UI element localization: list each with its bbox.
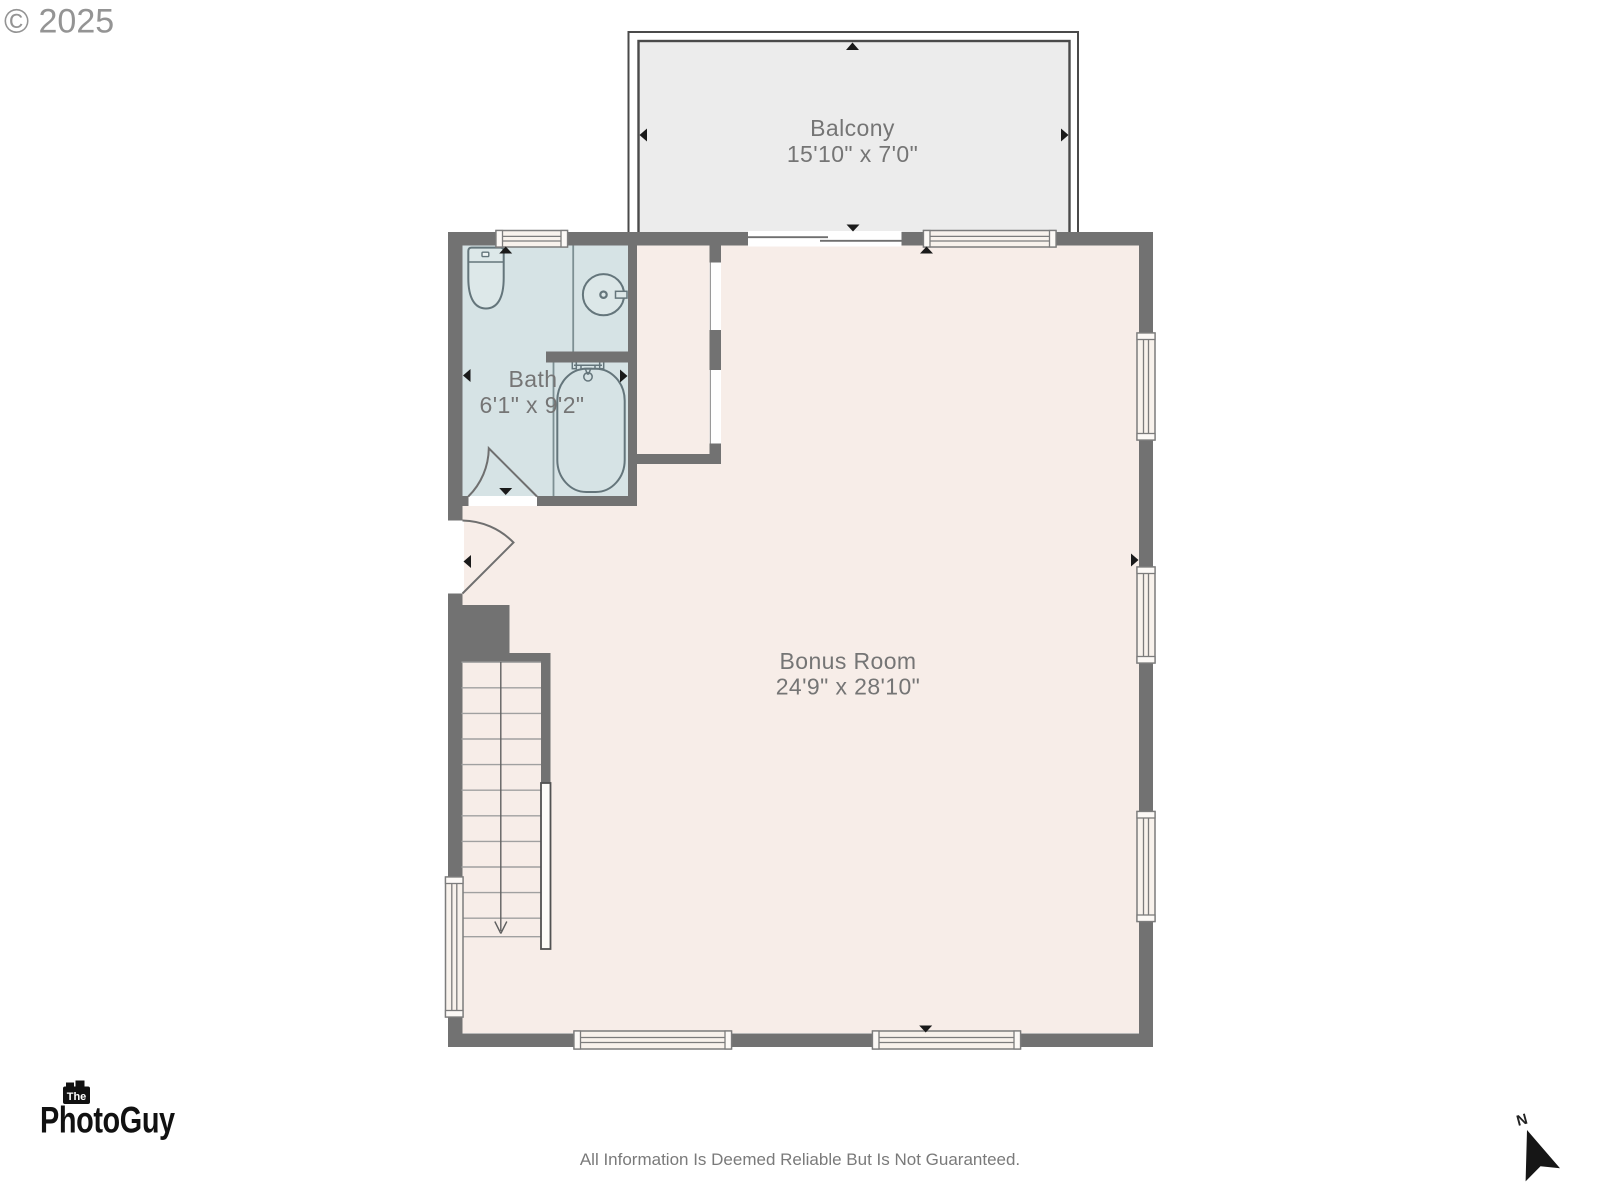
svg-text:Bonus Room: Bonus Room xyxy=(780,648,917,674)
svg-text:15'10" x 7'0": 15'10" x 7'0" xyxy=(787,141,918,167)
svg-text:24'9" x 28'10": 24'9" x 28'10" xyxy=(776,674,921,700)
svg-text:6'1" x 9'2": 6'1" x 9'2" xyxy=(480,392,585,418)
svg-text:All Information Is Deemed Reli: All Information Is Deemed Reliable But I… xyxy=(580,1150,1020,1169)
svg-text:© 2025: © 2025 xyxy=(4,3,114,41)
svg-text:Balcony: Balcony xyxy=(810,115,895,141)
svg-text:PhotoGuy: PhotoGuy xyxy=(40,1100,176,1141)
svg-text:The: The xyxy=(67,1091,87,1103)
svg-text:Bath: Bath xyxy=(509,366,558,392)
